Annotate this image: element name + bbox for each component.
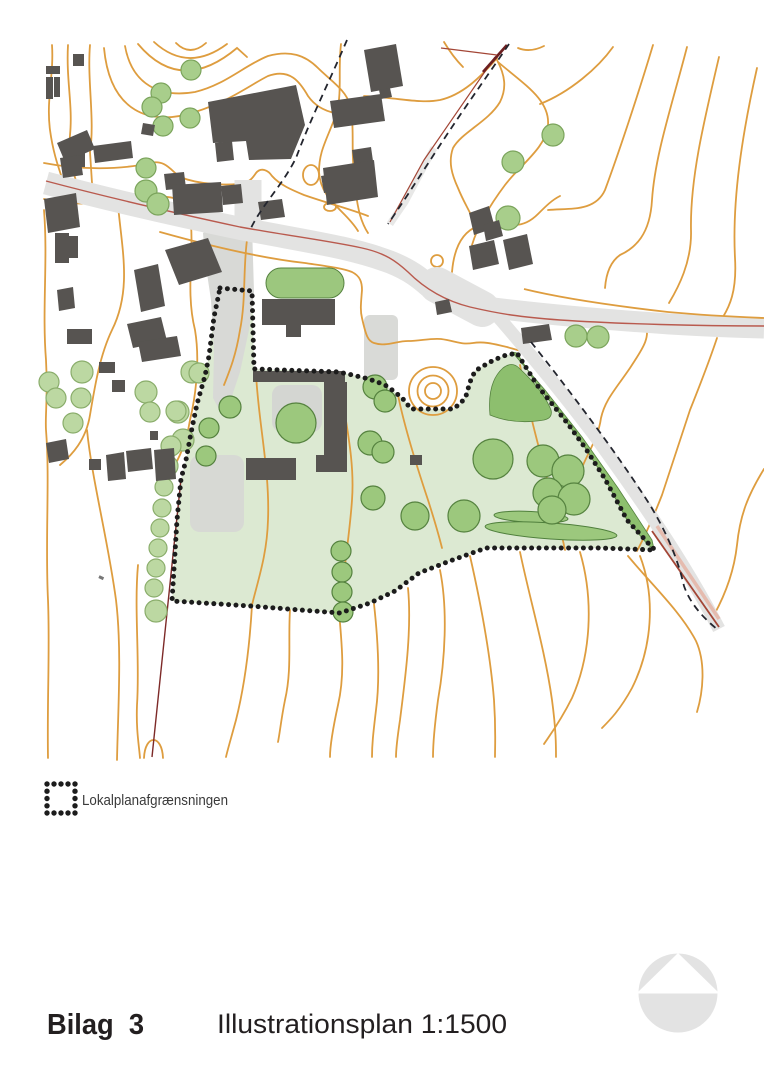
svg-text:Bilag 3: Bilag 3 (47, 1009, 144, 1041)
svg-text:Lokalplanafgrænsningen: Lokalplanafgrænsningen (82, 792, 228, 809)
svg-text:Illustrationsplan 1:1500: Illustrationsplan 1:1500 (217, 1009, 507, 1039)
